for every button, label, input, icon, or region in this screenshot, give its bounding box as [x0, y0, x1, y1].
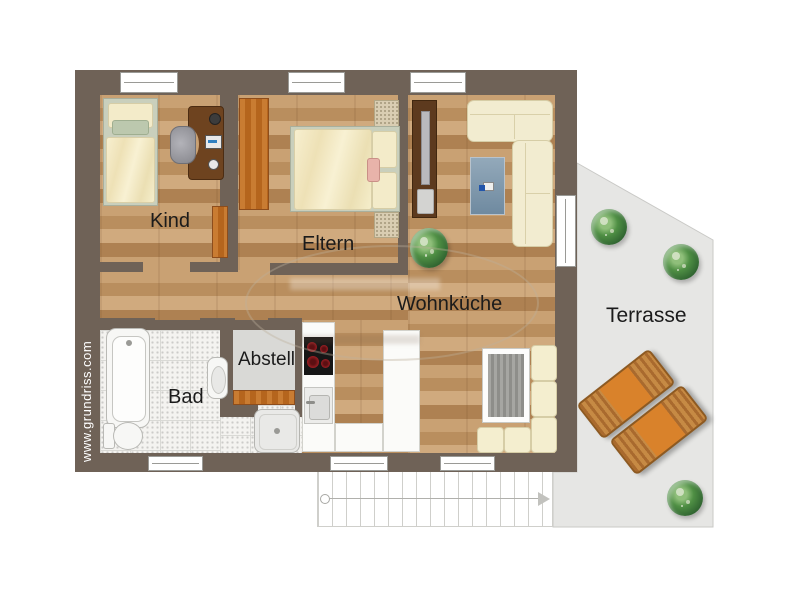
bathtub-inner: [112, 336, 146, 422]
kind-bed-pillow-green: [112, 120, 149, 135]
burner-4: [321, 359, 330, 368]
window-kitchen: [330, 456, 388, 471]
bench-cushion-1: [531, 345, 557, 381]
rug: [470, 157, 505, 215]
window-bad: [148, 456, 203, 471]
shower-drain: [274, 428, 280, 434]
eltern-accent-pillow: [367, 158, 380, 182]
window-eltern: [288, 72, 345, 93]
staircase: [317, 472, 553, 527]
tv: [421, 111, 430, 185]
bench-cushion-3: [531, 417, 557, 453]
wall-kind-bottom-left: [100, 262, 143, 272]
kitchen-sink: [304, 387, 333, 424]
kind-bed-duvet: [106, 137, 155, 203]
terrace-plant-2: [663, 244, 699, 280]
terrace-plant-3: [667, 480, 703, 516]
terrace-plant-1: [591, 209, 627, 245]
washbasin-bowl: [211, 366, 226, 394]
dining-table-top: [488, 354, 524, 417]
nightstand-bottom: [374, 212, 399, 238]
room-label-bad: Bad: [168, 386, 204, 409]
bathtub: [106, 328, 150, 428]
bathtub-faucet: [126, 340, 132, 346]
storage-shelf: [233, 390, 295, 405]
laptop-screen: [208, 140, 217, 143]
desk-mug: [208, 159, 219, 170]
eltern-bed: [290, 126, 400, 212]
kind-dresser: [212, 206, 228, 258]
tv-board: [412, 100, 437, 218]
toilet-bowl: [113, 422, 143, 450]
room-label-eltern: Eltern: [302, 233, 354, 256]
bench-cushion-2: [531, 381, 557, 417]
floor-plan: Kind Eltern Wohnküche Bad Abstell Terras…: [0, 0, 791, 600]
washbasin: [207, 357, 228, 399]
corner-sofa-top: [467, 100, 553, 142]
corner-sofa-side: [512, 140, 553, 247]
center-watermark-smudge-2: [300, 335, 420, 344]
dining-table: [482, 348, 530, 423]
shower: [254, 409, 300, 453]
stair-arrow: [538, 492, 550, 506]
rug-remote: [479, 185, 485, 191]
toilet: [103, 420, 145, 452]
bench-cushion-5: [504, 427, 531, 453]
wall-abstell-bottom: [220, 405, 258, 417]
sink-basin: [309, 395, 330, 420]
terrace-door: [556, 195, 576, 267]
sink-faucet: [306, 401, 315, 404]
window-dining: [440, 456, 495, 471]
site-watermark: www.grundriss.com: [79, 330, 94, 462]
center-watermark-smudge-1: [290, 278, 440, 290]
room-label-abstell: Abstell: [238, 349, 295, 371]
eltern-bed-duvet: [294, 129, 372, 210]
room-label-kind: Kind: [150, 210, 190, 233]
kind-bed: [103, 98, 158, 206]
nightstand-top: [374, 100, 399, 127]
laptop: [205, 135, 222, 149]
eltern-wardrobe: [239, 98, 269, 210]
kitchen-counter-bottom: [335, 423, 383, 452]
desk-lamp: [209, 113, 221, 125]
room-label-wohnkueche: Wohnküche: [397, 293, 502, 316]
stair-start-circle: [320, 494, 330, 504]
window-living-top: [410, 72, 466, 93]
wall-kind-bottom-right: [190, 262, 238, 272]
burner-3: [307, 356, 319, 368]
stair-direction-line: [324, 498, 538, 499]
room-label-terrasse: Terrasse: [606, 304, 687, 328]
window-kind: [120, 72, 178, 93]
folded-towel: [417, 189, 434, 214]
bench-cushion-4: [477, 427, 504, 453]
office-chair: [170, 126, 196, 164]
